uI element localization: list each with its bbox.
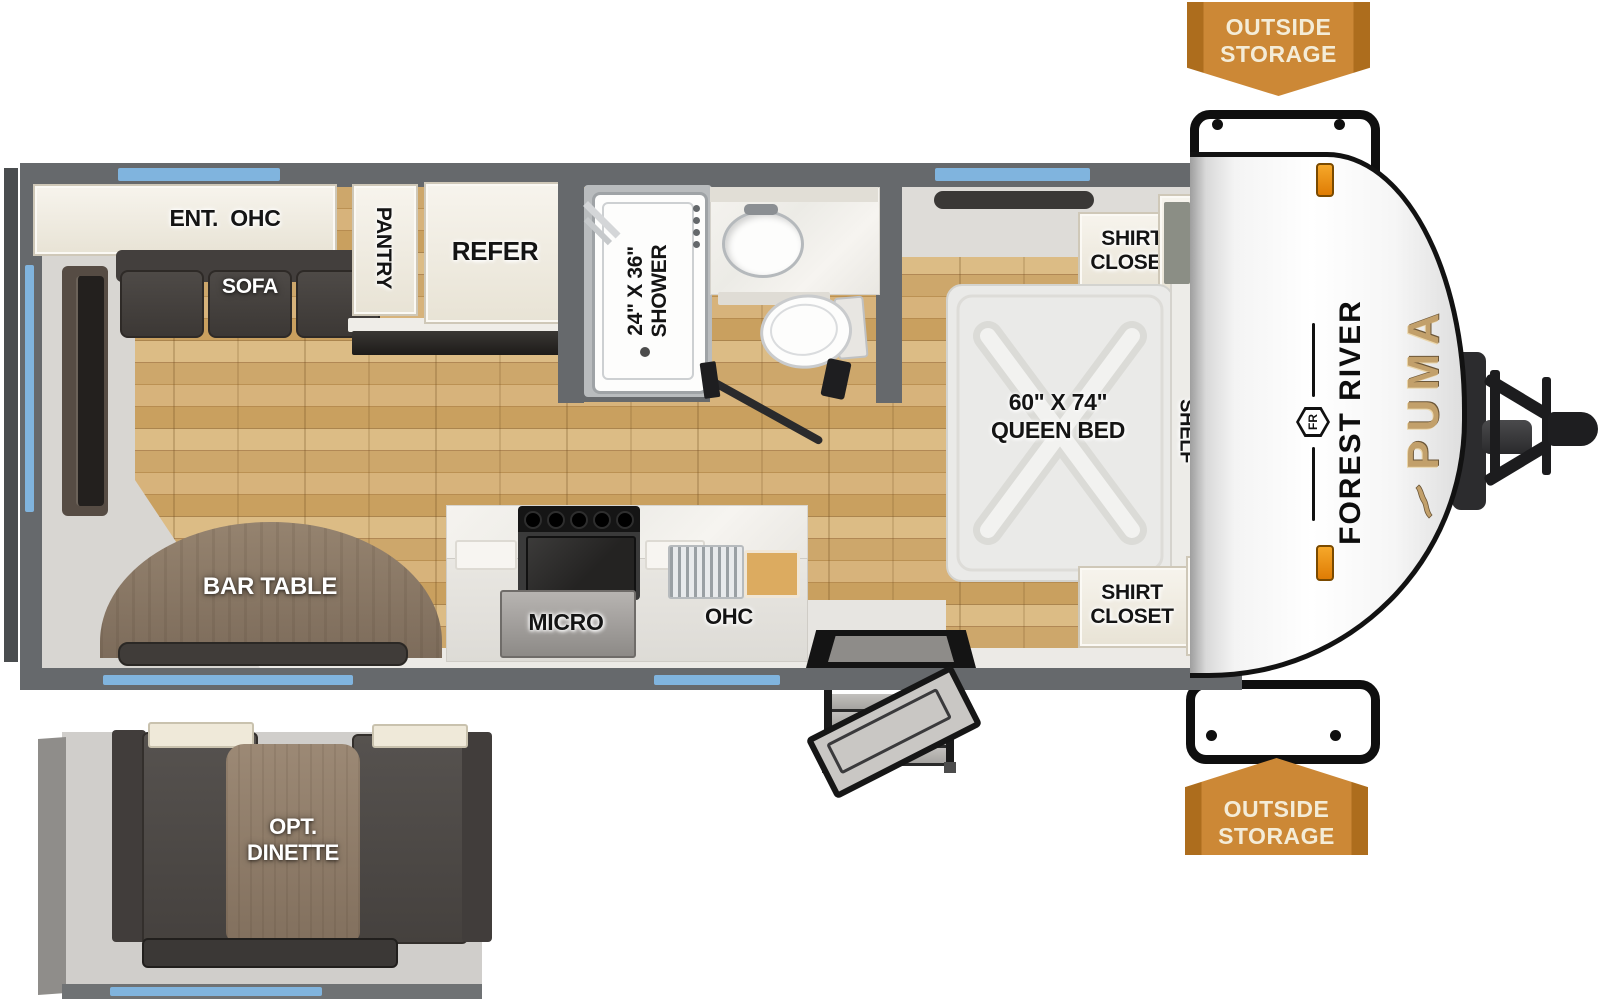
floorplan-stage: OUTSIDE STORAGE OUTSIDE STORAGE ENT. OHC… — [0, 0, 1600, 1007]
shower-head-dot — [693, 217, 700, 224]
outside-storage-banner-bottom: OUTSIDE STORAGE — [1185, 758, 1368, 855]
outside-storage-rack-bottom — [1186, 680, 1380, 764]
rack-bolt — [1330, 730, 1341, 741]
rack-bolt — [1206, 730, 1217, 741]
dinette-text2: DINETTE — [247, 840, 339, 866]
bath-backsplash — [710, 187, 878, 202]
cap-marker-light-top — [1316, 163, 1334, 197]
sink-rack — [668, 545, 744, 599]
step-foot — [944, 762, 956, 773]
shower-head-dot — [693, 241, 700, 248]
banner-top-line2: STORAGE — [1220, 41, 1337, 68]
pantry-text: PANTRY — [371, 207, 395, 289]
dinette-wall-left — [38, 737, 66, 995]
forest-river-monogram: FR — [1299, 410, 1327, 434]
sofa-text: SOFA — [222, 275, 278, 299]
toilet — [757, 290, 869, 371]
bath-wall-left — [558, 163, 584, 403]
dinette-bench-left-back — [112, 730, 146, 942]
stove-burners — [524, 511, 634, 527]
ohc-label: OHC — [684, 602, 774, 632]
closet-bottom-text1: SHIRT — [1090, 581, 1173, 605]
dinette-bench-right-back — [462, 732, 492, 942]
shower-head — [690, 205, 702, 257]
counter-cover-left — [455, 540, 517, 570]
bar-bench — [118, 642, 408, 666]
refer-label: REFER — [434, 236, 556, 266]
bath-faucet — [744, 204, 778, 215]
ohc-text: OHC — [705, 604, 753, 630]
burner-knob — [547, 511, 565, 529]
burner-knob — [616, 511, 634, 529]
burner-knob — [524, 511, 542, 529]
banner-bottom-line1: OUTSIDE — [1224, 796, 1330, 823]
cutting-board — [744, 550, 800, 598]
dinette-bench-right — [352, 734, 468, 944]
wardrobe-opening — [1164, 202, 1190, 284]
dinette-label: OPT. DINETTE — [233, 810, 353, 870]
bar-table-label: BAR TABLE — [160, 572, 380, 602]
puma-wordmark: PUMA — [1399, 304, 1449, 470]
puma-cat-icon — [1414, 482, 1434, 520]
shirt-closet-bottom-label: SHIRT CLOSET — [1082, 578, 1182, 632]
tv — [62, 266, 108, 516]
micro-text: MICRO — [528, 609, 603, 636]
dinette-window — [110, 987, 322, 996]
ent-ohc-text: ENT. OHC — [169, 205, 280, 232]
forest-river-wordmark: FOREST RIVER — [1334, 299, 1368, 545]
micro-label: MICRO — [506, 608, 626, 636]
shower-head-dot — [693, 205, 700, 212]
brand-lockup: FR FOREST RIVER — [1290, 262, 1374, 582]
a-frame-crossbar — [1490, 370, 1500, 480]
shower-size-text: 24" X 36" — [624, 246, 648, 336]
rack-bolt — [1334, 119, 1345, 130]
shower-label: 24" X 36" SHOWER — [624, 245, 672, 338]
ent-ohc-label: ENT. OHC — [120, 205, 330, 231]
burner-knob — [570, 511, 588, 529]
window-top-bedroom — [935, 168, 1090, 181]
hitch-coupler — [1548, 412, 1598, 446]
bar-table-text: BAR TABLE — [203, 573, 337, 601]
entry-mat-inner — [828, 636, 954, 662]
brand-dash — [1312, 447, 1315, 521]
shower-text: SHOWER — [648, 245, 672, 338]
window-rear — [25, 265, 34, 512]
stove — [518, 506, 640, 600]
rear-bumper — [4, 168, 18, 662]
banner-bottom-line2: STORAGE — [1218, 823, 1335, 850]
bed-text: QUEEN BED — [991, 417, 1125, 445]
tv-screen — [76, 276, 104, 506]
window-bottom-kitchen — [654, 675, 780, 685]
window-top-left — [118, 168, 280, 181]
galley-shelf-dark — [352, 331, 568, 355]
bath-sink — [722, 210, 804, 278]
banner-top-line1: OUTSIDE — [1226, 14, 1332, 41]
dinette-inset: OPT. DINETTE — [28, 695, 500, 1007]
brand-dash — [1312, 323, 1315, 397]
bed-size-text: 60" X 74" — [991, 389, 1125, 417]
dinette-cushion-top-right — [372, 724, 468, 748]
bed-soundbar — [934, 191, 1094, 209]
dinette-text1: OPT. — [247, 814, 339, 840]
dinette-rail — [142, 938, 398, 968]
shower-head-dot — [693, 229, 700, 236]
sofa-label: SOFA — [190, 274, 310, 300]
burner-knob — [593, 511, 611, 529]
refer-text: REFER — [452, 236, 539, 267]
queen-bed-label: 60" X 74" QUEEN BED — [968, 388, 1148, 446]
window-bottom-left — [103, 675, 353, 685]
rack-bolt — [1212, 119, 1223, 130]
forest-river-logo-icon: FR — [1296, 407, 1330, 437]
oven-glass — [526, 536, 636, 596]
brand-logo-row: FR — [1296, 323, 1330, 521]
closet-bottom-text2: CLOSET — [1090, 605, 1173, 629]
outside-storage-banner-top: OUTSIDE STORAGE — [1187, 2, 1370, 96]
shower-drain — [640, 347, 650, 357]
pantry-label: PANTRY — [371, 207, 395, 289]
puma-wordmark-block: PUMA — [1399, 282, 1449, 542]
